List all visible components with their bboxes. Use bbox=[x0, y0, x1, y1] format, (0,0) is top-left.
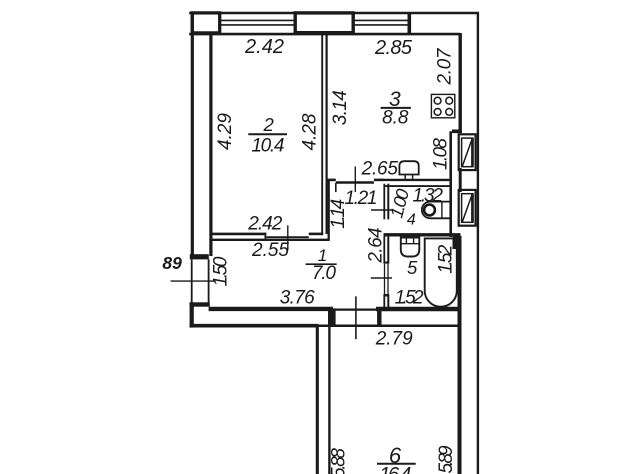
svg-text:3.14: 3.14 bbox=[330, 90, 351, 125]
svg-text:1.52: 1.52 bbox=[436, 244, 457, 273]
svg-text:89: 89 bbox=[162, 253, 182, 273]
svg-text:2.64: 2.64 bbox=[366, 227, 387, 263]
svg-text:5: 5 bbox=[407, 257, 418, 278]
svg-text:1.08: 1.08 bbox=[431, 138, 452, 170]
svg-text:16.4: 16.4 bbox=[379, 464, 411, 474]
svg-text:4.28: 4.28 bbox=[300, 113, 321, 150]
svg-text:10.4: 10.4 bbox=[251, 135, 284, 156]
svg-text:3.76: 3.76 bbox=[280, 288, 315, 309]
svg-text:5.89: 5.89 bbox=[436, 445, 457, 474]
svg-text:8.8: 8.8 bbox=[382, 108, 409, 129]
svg-text:2.85: 2.85 bbox=[374, 37, 413, 59]
svg-text:4.29: 4.29 bbox=[215, 113, 236, 150]
svg-text:5.88: 5.88 bbox=[329, 448, 350, 474]
svg-text:1.32: 1.32 bbox=[412, 186, 443, 207]
svg-text:7.0: 7.0 bbox=[312, 263, 336, 284]
svg-text:1.21: 1.21 bbox=[345, 188, 378, 209]
svg-text:2: 2 bbox=[262, 114, 274, 135]
svg-text:2.79: 2.79 bbox=[375, 329, 413, 350]
svg-text:2.42: 2.42 bbox=[247, 214, 282, 235]
svg-text:1.14: 1.14 bbox=[328, 199, 349, 229]
svg-text:1.52: 1.52 bbox=[395, 288, 424, 309]
svg-text:4: 4 bbox=[407, 211, 416, 228]
svg-text:2.55: 2.55 bbox=[251, 240, 289, 261]
svg-text:2.65: 2.65 bbox=[361, 159, 399, 180]
svg-text:2.42: 2.42 bbox=[244, 36, 284, 58]
svg-text:2.07: 2.07 bbox=[435, 47, 456, 85]
svg-text:1.50: 1.50 bbox=[211, 256, 232, 286]
